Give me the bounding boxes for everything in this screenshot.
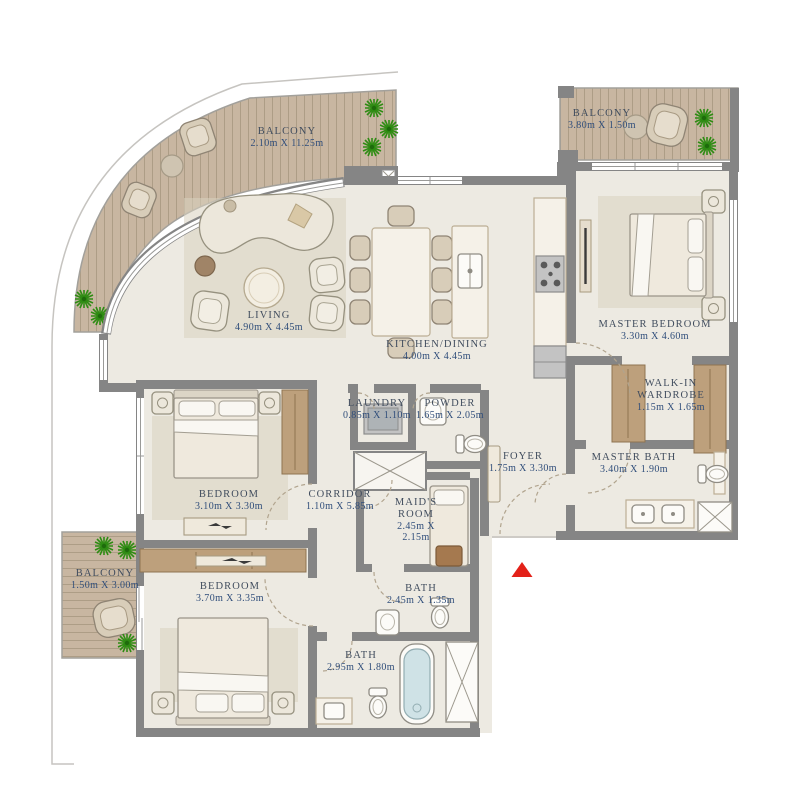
entrance-arrow <box>512 562 533 577</box>
floor-plan: BALCONY 2.10m X 11.25m BALCONY 3.80m X 1… <box>0 0 800 800</box>
floor-plan-graphic <box>0 0 800 800</box>
balcony-right-deck <box>558 86 739 172</box>
